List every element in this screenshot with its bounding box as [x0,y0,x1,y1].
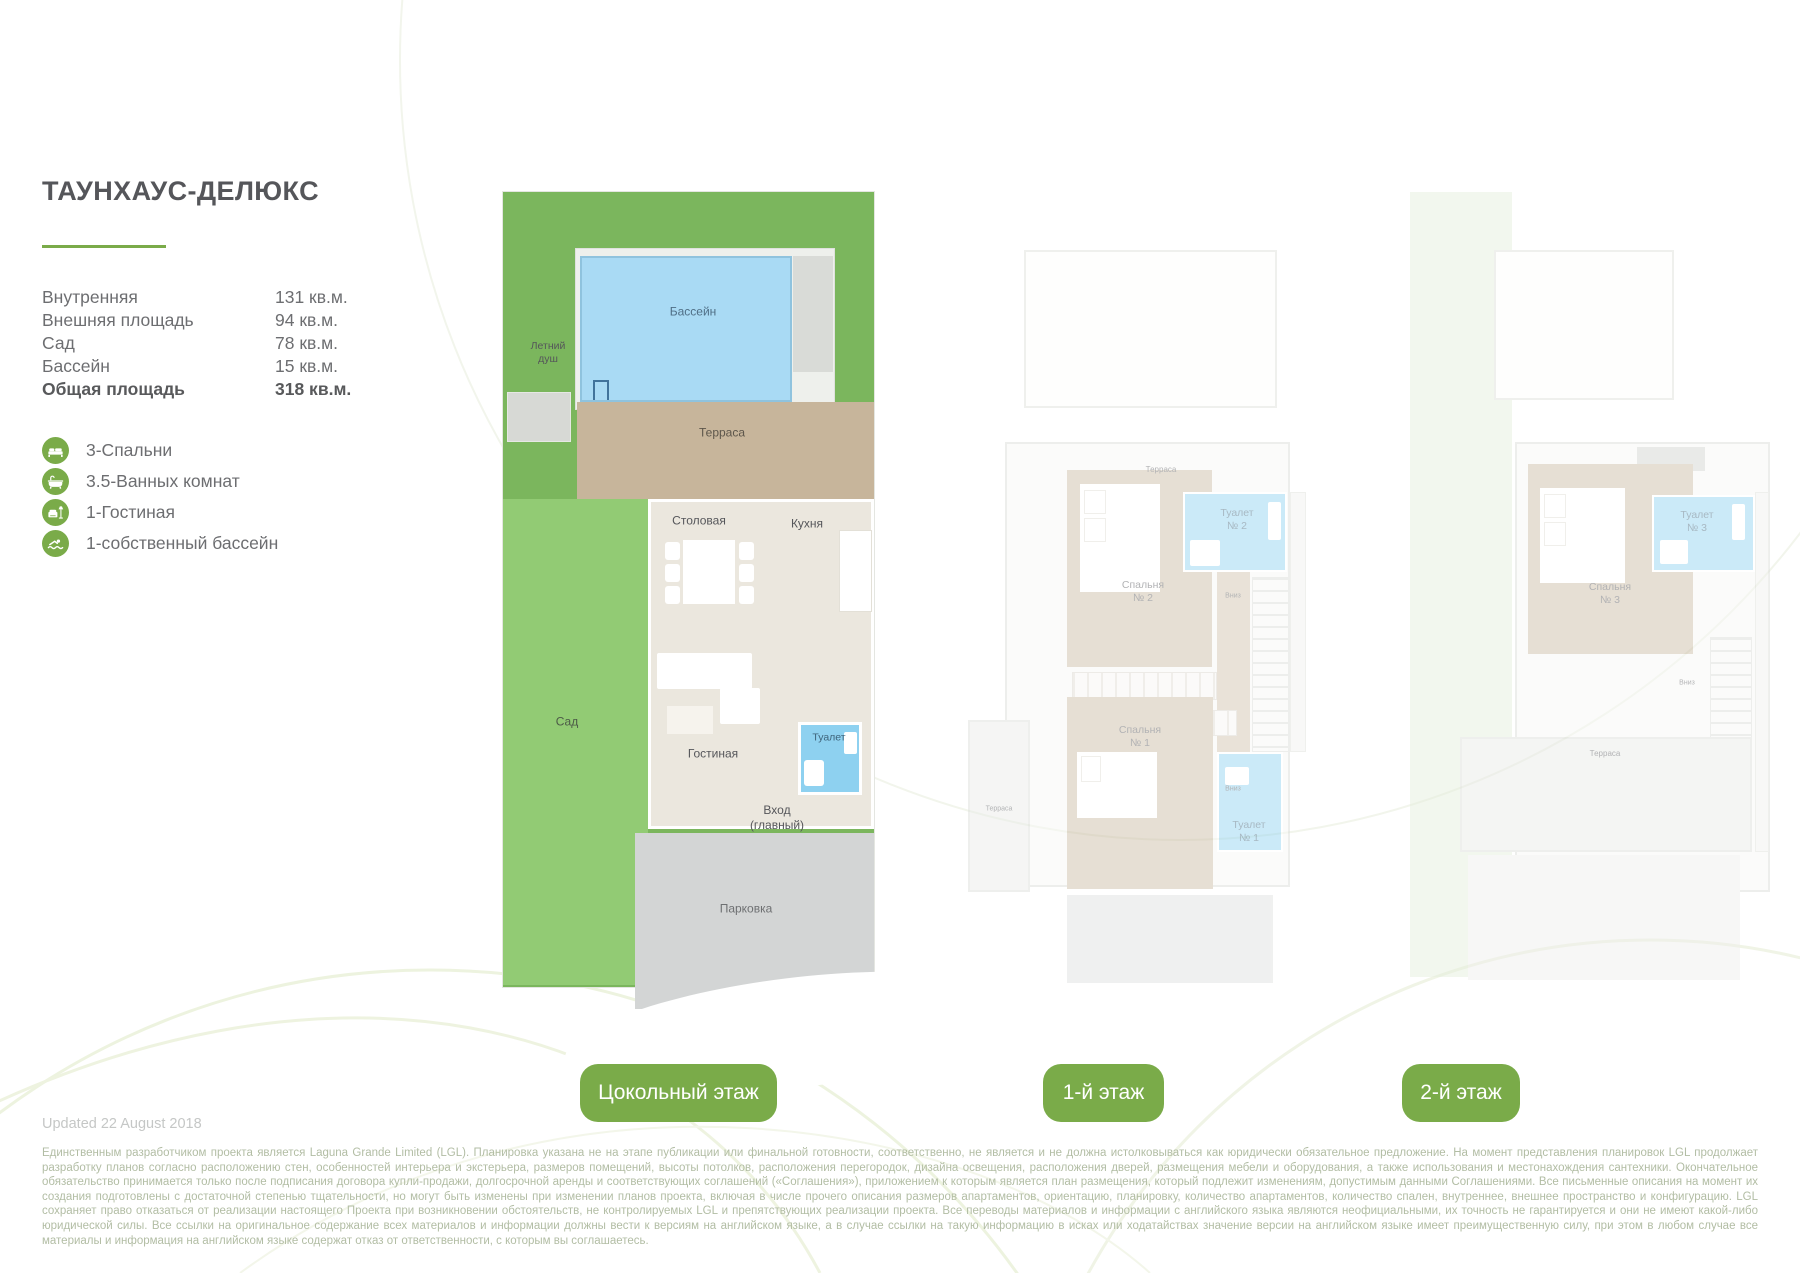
disclaimer-text: Единственным разработчиком проекта являе… [42,1146,1758,1248]
chair [739,564,754,582]
terrace-top-label: Терраса [1146,465,1177,475]
room-garden-strip [503,499,648,985]
kitchen-label: Кухня [791,517,823,532]
stat-value: 131 кв.м. [275,286,372,309]
stat-label: Общая площадь [42,378,275,401]
stat-value: 15 кв.м. [275,355,372,378]
summer-shower-label: Летний душ [531,340,566,366]
feature-label: 1-собственный бассейн [86,533,278,554]
room-pool [580,256,792,402]
sink-fixture [1268,502,1281,540]
bedroom-2-label: Спальня № 2 [1122,579,1164,605]
parking-ghost [1067,895,1273,983]
pillow [1081,756,1101,782]
updated-date: Updated 22 August 2018 [42,1116,202,1132]
chair [739,586,754,604]
down-label: Вниз [1679,680,1695,689]
bed-icon [42,437,69,464]
feature-living-room: 1-Гостиная [42,499,278,526]
pillow [1544,494,1566,518]
pillow [1084,490,1106,514]
chair [665,564,680,582]
pool-label: Бассейн [670,305,717,320]
toilet-1-label: Туалет № 1 [1232,819,1265,845]
terrace-label: Терраса [1590,749,1621,759]
page: ТАУНХАУС-ДЕЛЮКС Внутренняя 131 кв.м. Вне… [0,0,1800,1273]
stairs [1252,577,1290,752]
pool-icon [42,530,69,557]
stat-value: 78 кв.м. [275,332,372,355]
stat-row-garden: Сад 78 кв.м. [42,332,372,355]
pool-ghost [1024,250,1277,408]
second-floor-button[interactable]: 2-й этаж [1402,1064,1520,1122]
floorplan-first-floor: Терраса Спальня № 2 Туалет № 2 Вниз Спал… [950,192,1322,1020]
chair [739,542,754,560]
stat-row-total-area: Общая площадь 318 кв.м. [42,378,372,401]
armchair-icon [42,499,69,526]
chair [665,586,680,604]
stat-row-pool: Бассейн 15 кв.м. [42,355,372,378]
stat-value: 318 кв.м. [275,378,372,401]
sink-fixture [844,732,857,754]
balcony-strip [1290,492,1306,752]
coffee-table [667,706,713,734]
title-underline [42,245,166,248]
feature-list: 3-Спальни 3.5-Ванных комнат 1-Гостиная 1… [42,437,278,561]
dining-label: Столовая [672,514,726,529]
down-label: Вниз [1225,593,1241,602]
stat-label: Бассейн [42,355,275,378]
stat-label: Внешняя площадь [42,309,275,332]
pool-ghost [1494,250,1674,400]
stat-label: Внутренняя [42,286,275,309]
lower-roof-ghost [1468,855,1740,980]
chair [665,542,680,560]
summer-shower-pad [507,392,571,442]
feature-bathrooms: 3.5-Ванных комнат [42,468,278,495]
balcony-strip [1755,492,1769,852]
pillow [1084,518,1106,542]
feature-label: 1-Гостиная [86,502,175,523]
closet [1072,672,1217,700]
feature-private-pool: 1-собственный бассейн [42,530,278,557]
feature-bedrooms: 3-Спальни [42,437,278,464]
feature-label: 3-Спальни [86,440,172,461]
floorplan-basement: Сад Бассейн Летний душ Терраса Столовая … [503,192,874,1020]
dining-table [683,540,735,604]
floorplan-second-floor: Спальня № 3 Туалет № 3 Вниз Терраса [1410,192,1782,1020]
stat-value: 94 кв.м. [275,309,372,332]
garden-label: Сад [556,715,578,730]
terrace-left-label: Терраса [986,806,1013,815]
toilet-3-label: Туалет № 3 [1680,509,1713,535]
sofa [720,688,760,724]
bathtub-icon [42,468,69,495]
shower-fixture [1190,540,1220,566]
stat-label: Сад [42,332,275,355]
sink-fixture [1225,767,1249,785]
terrace-label: Терраса [699,426,745,441]
pool-ladder-icon [593,380,609,400]
parking-label: Парковка [720,902,773,917]
toilet-2-label: Туалет № 2 [1220,507,1253,533]
basement-floor-button[interactable]: Цокольный этаж [580,1064,777,1122]
kitchen-counter [839,530,872,612]
first-floor-button[interactable]: 1-й этаж [1043,1064,1164,1122]
room-terrace [577,402,874,499]
living-room-label: Гостиная [688,747,738,762]
pillow [1544,522,1566,546]
entrance-label: Вход (главный) [750,803,804,833]
down-label: Вниз [1225,786,1241,795]
toilet-fixture [804,760,824,786]
sofa [657,653,752,689]
bedroom-1-label: Спальня № 1 [1119,724,1161,750]
shower-fixture [1660,540,1688,564]
sink-fixture [1732,504,1745,540]
pool-steps [793,256,833,372]
bedroom-3-label: Спальня № 3 [1589,581,1631,607]
stat-row-outer-area: Внешняя площадь 94 кв.м. [42,309,372,332]
stat-row-inner-area: Внутренняя 131 кв.м. [42,286,372,309]
toilet-label: Туалет [812,731,845,744]
area-stats: Внутренняя 131 кв.м. Внешняя площадь 94 … [42,286,372,401]
page-title: ТАУНХАУС-ДЕЛЮКС [42,176,319,207]
feature-label: 3.5-Ванных комнат [86,471,240,492]
